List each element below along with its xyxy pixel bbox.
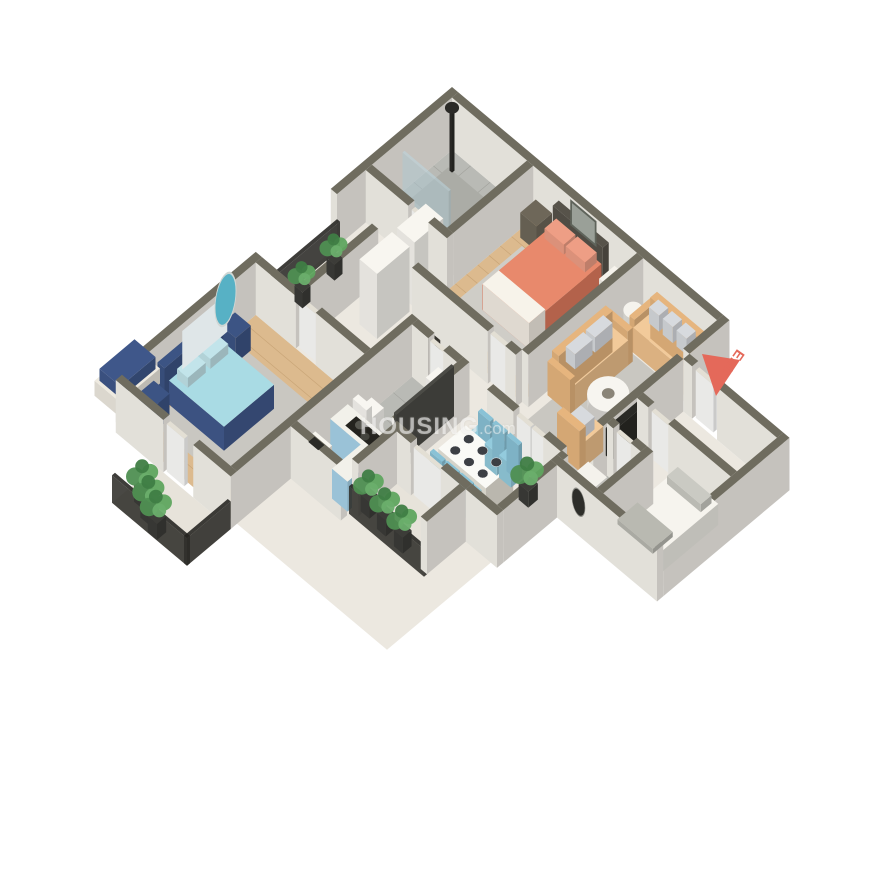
watermark-text: HOUSING (360, 413, 479, 440)
watermark-suffix: .com (479, 419, 516, 438)
entry-arrow-icon (694, 344, 804, 434)
floorplan-stage: HOUSING.com Entry (0, 0, 870, 870)
housing-watermark: HOUSING.com (360, 413, 516, 441)
entry-indicator: Entry (694, 344, 804, 434)
